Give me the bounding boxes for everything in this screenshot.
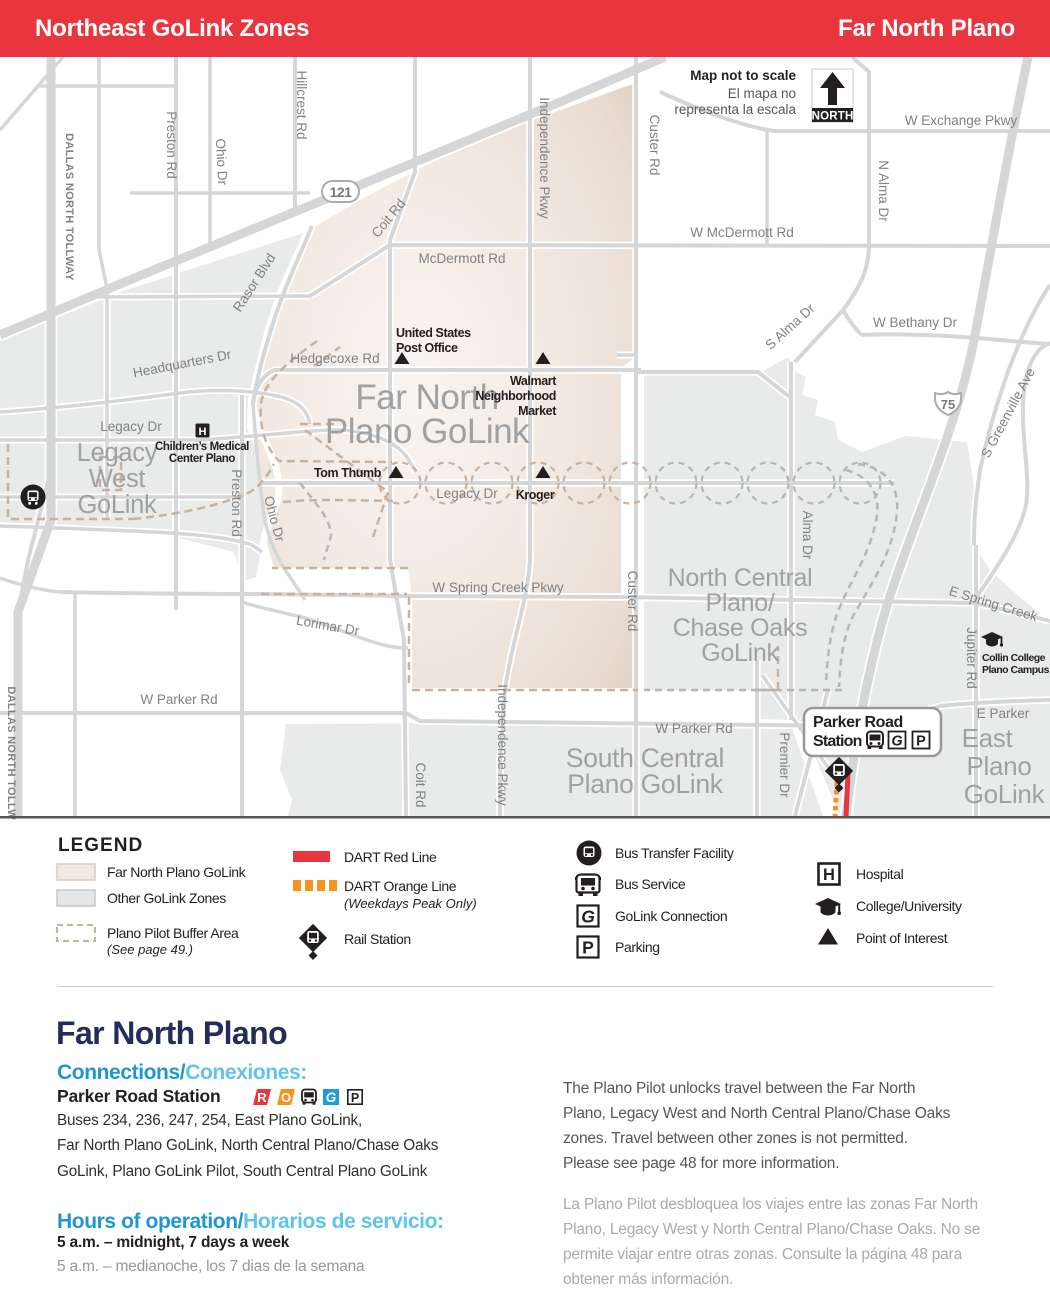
svg-text:H: H	[199, 426, 207, 438]
svg-text:GoLink: GoLink	[78, 491, 158, 519]
svg-text:Plano/: Plano/	[705, 589, 774, 617]
svg-text:Plano GoLink: Plano GoLink	[325, 412, 530, 451]
svg-text:GoLink: GoLink	[701, 639, 779, 667]
svg-text:H: H	[823, 866, 835, 884]
svg-text:Center Plano: Center Plano	[169, 453, 236, 465]
svg-text:Neighborhood: Neighborhood	[475, 389, 556, 403]
svg-text:Plano Pilot Buffer Area: Plano Pilot Buffer Area	[107, 925, 239, 941]
svg-text:(Weekdays Peak Only): (Weekdays Peak Only)	[344, 896, 477, 911]
svg-text:Coit Rd: Coit Rd	[413, 762, 428, 807]
svg-text:Preston Rd: Preston Rd	[229, 469, 244, 537]
svg-text:Jupiter Rd: Jupiter Rd	[964, 627, 979, 689]
svg-text:DALLAS NORTH TOLLWAY: DALLAS NORTH TOLLWAY	[63, 133, 75, 281]
svg-text:GoLink: GoLink	[964, 779, 1046, 809]
svg-text:Hillcrest Rd: Hillcrest Rd	[294, 70, 309, 139]
svg-text:Tom Thumb: Tom Thumb	[314, 466, 382, 480]
svg-text:W Parker Rd: W Parker Rd	[655, 721, 732, 736]
svg-text:West: West	[89, 465, 146, 493]
svg-text:Ohio Dr: Ohio Dr	[213, 138, 230, 186]
svg-text:Parker Road: Parker Road	[813, 714, 903, 731]
svg-text:Plano: Plano	[967, 751, 1032, 781]
svg-text:G: G	[326, 1090, 337, 1105]
svg-text:Legacy Dr: Legacy Dr	[100, 419, 162, 434]
svg-text:P: P	[351, 1091, 359, 1105]
svg-text:United States: United States	[396, 326, 471, 340]
svg-text:Post Office: Post Office	[396, 341, 458, 355]
svg-text:representa la escala: representa la escala	[674, 102, 796, 117]
svg-text:121: 121	[330, 184, 353, 200]
svg-text:Lorimar Dr: Lorimar Dr	[295, 613, 361, 639]
svg-text:Bus Transfer Facility: Bus Transfer Facility	[615, 845, 734, 861]
svg-text:Collin College: Collin College	[982, 652, 1046, 664]
svg-text:Alma Dr: Alma Dr	[800, 511, 815, 560]
svg-text:Independence Pkwy: Independence Pkwy	[537, 97, 552, 219]
svg-text:Custer Rd: Custer Rd	[625, 571, 640, 632]
svg-text:75: 75	[941, 397, 955, 412]
svg-text:DART Orange Line: DART Orange Line	[344, 878, 457, 894]
svg-text:W Bethany Dr: W Bethany Dr	[873, 315, 958, 330]
svg-text:College/University: College/University	[856, 898, 962, 914]
svg-text:LEGEND: LEGEND	[58, 835, 143, 856]
svg-text:Plano GoLink: Plano GoLink	[567, 769, 724, 799]
svg-text:E Parker: E Parker	[977, 706, 1030, 721]
svg-text:Kroger: Kroger	[516, 488, 555, 502]
svg-text:W McDermott Rd: W McDermott Rd	[690, 225, 794, 240]
svg-text:G: G	[581, 907, 595, 927]
svg-text:W Spring Creek Pkwy: W Spring Creek Pkwy	[432, 580, 564, 595]
svg-text:Independence Pkwy: Independence Pkwy	[495, 684, 510, 806]
svg-text:El mapa no: El mapa no	[728, 86, 796, 101]
svg-text:Bus Service: Bus Service	[615, 876, 686, 892]
svg-text:Market: Market	[518, 404, 557, 418]
svg-text:P: P	[582, 938, 594, 958]
svg-text:East: East	[962, 723, 1014, 753]
svg-text:Other GoLink Zones: Other GoLink Zones	[107, 890, 226, 906]
svg-text:Plano Campus: Plano Campus	[982, 664, 1050, 676]
svg-text:DART Red Line: DART Red Line	[344, 849, 437, 865]
svg-text:Legacy: Legacy	[77, 439, 158, 467]
svg-text:Custer Rd: Custer Rd	[647, 115, 662, 176]
svg-text:N Alma Dr: N Alma Dr	[876, 160, 891, 222]
svg-text:Chase Oaks: Chase Oaks	[673, 614, 808, 642]
svg-text:Far North Plano GoLink: Far North Plano GoLink	[107, 864, 247, 880]
svg-text:Legacy Dr: Legacy Dr	[436, 486, 498, 501]
svg-text:Point of Interest: Point of Interest	[856, 930, 948, 946]
svg-text:Walmart: Walmart	[510, 374, 557, 388]
svg-text:W Exchange Pkwy: W Exchange Pkwy	[905, 113, 1018, 128]
svg-text:Rail Station: Rail Station	[344, 931, 411, 947]
svg-text:NORTH: NORTH	[812, 111, 854, 123]
svg-text:Station: Station	[813, 733, 862, 750]
svg-text:GoLink Connection: GoLink Connection	[615, 908, 727, 924]
svg-text:Premier Dr: Premier Dr	[777, 732, 792, 798]
svg-text:O: O	[281, 1090, 291, 1105]
svg-text:G: G	[891, 734, 902, 750]
svg-text:Preston Rd: Preston Rd	[164, 111, 179, 179]
svg-text:W Parker Rd: W Parker Rd	[140, 692, 217, 707]
svg-text:Children’s Medical: Children’s Medical	[155, 441, 249, 453]
svg-text:P: P	[916, 734, 926, 750]
svg-text:R: R	[257, 1090, 267, 1105]
svg-text:Parking: Parking	[615, 939, 660, 955]
svg-text:Hospital: Hospital	[856, 866, 904, 882]
svg-text:McDermott Rd: McDermott Rd	[418, 251, 505, 266]
svg-text:North Central: North Central	[668, 564, 813, 592]
svg-text:Hedgecoxe Rd: Hedgecoxe Rd	[290, 351, 379, 366]
svg-text:Map not to scale: Map not to scale	[690, 68, 796, 83]
svg-text:DALLAS NORTH TOLLWA: DALLAS NORTH TOLLWA	[5, 686, 17, 820]
svg-text:(See page 49.): (See page 49.)	[107, 942, 193, 957]
